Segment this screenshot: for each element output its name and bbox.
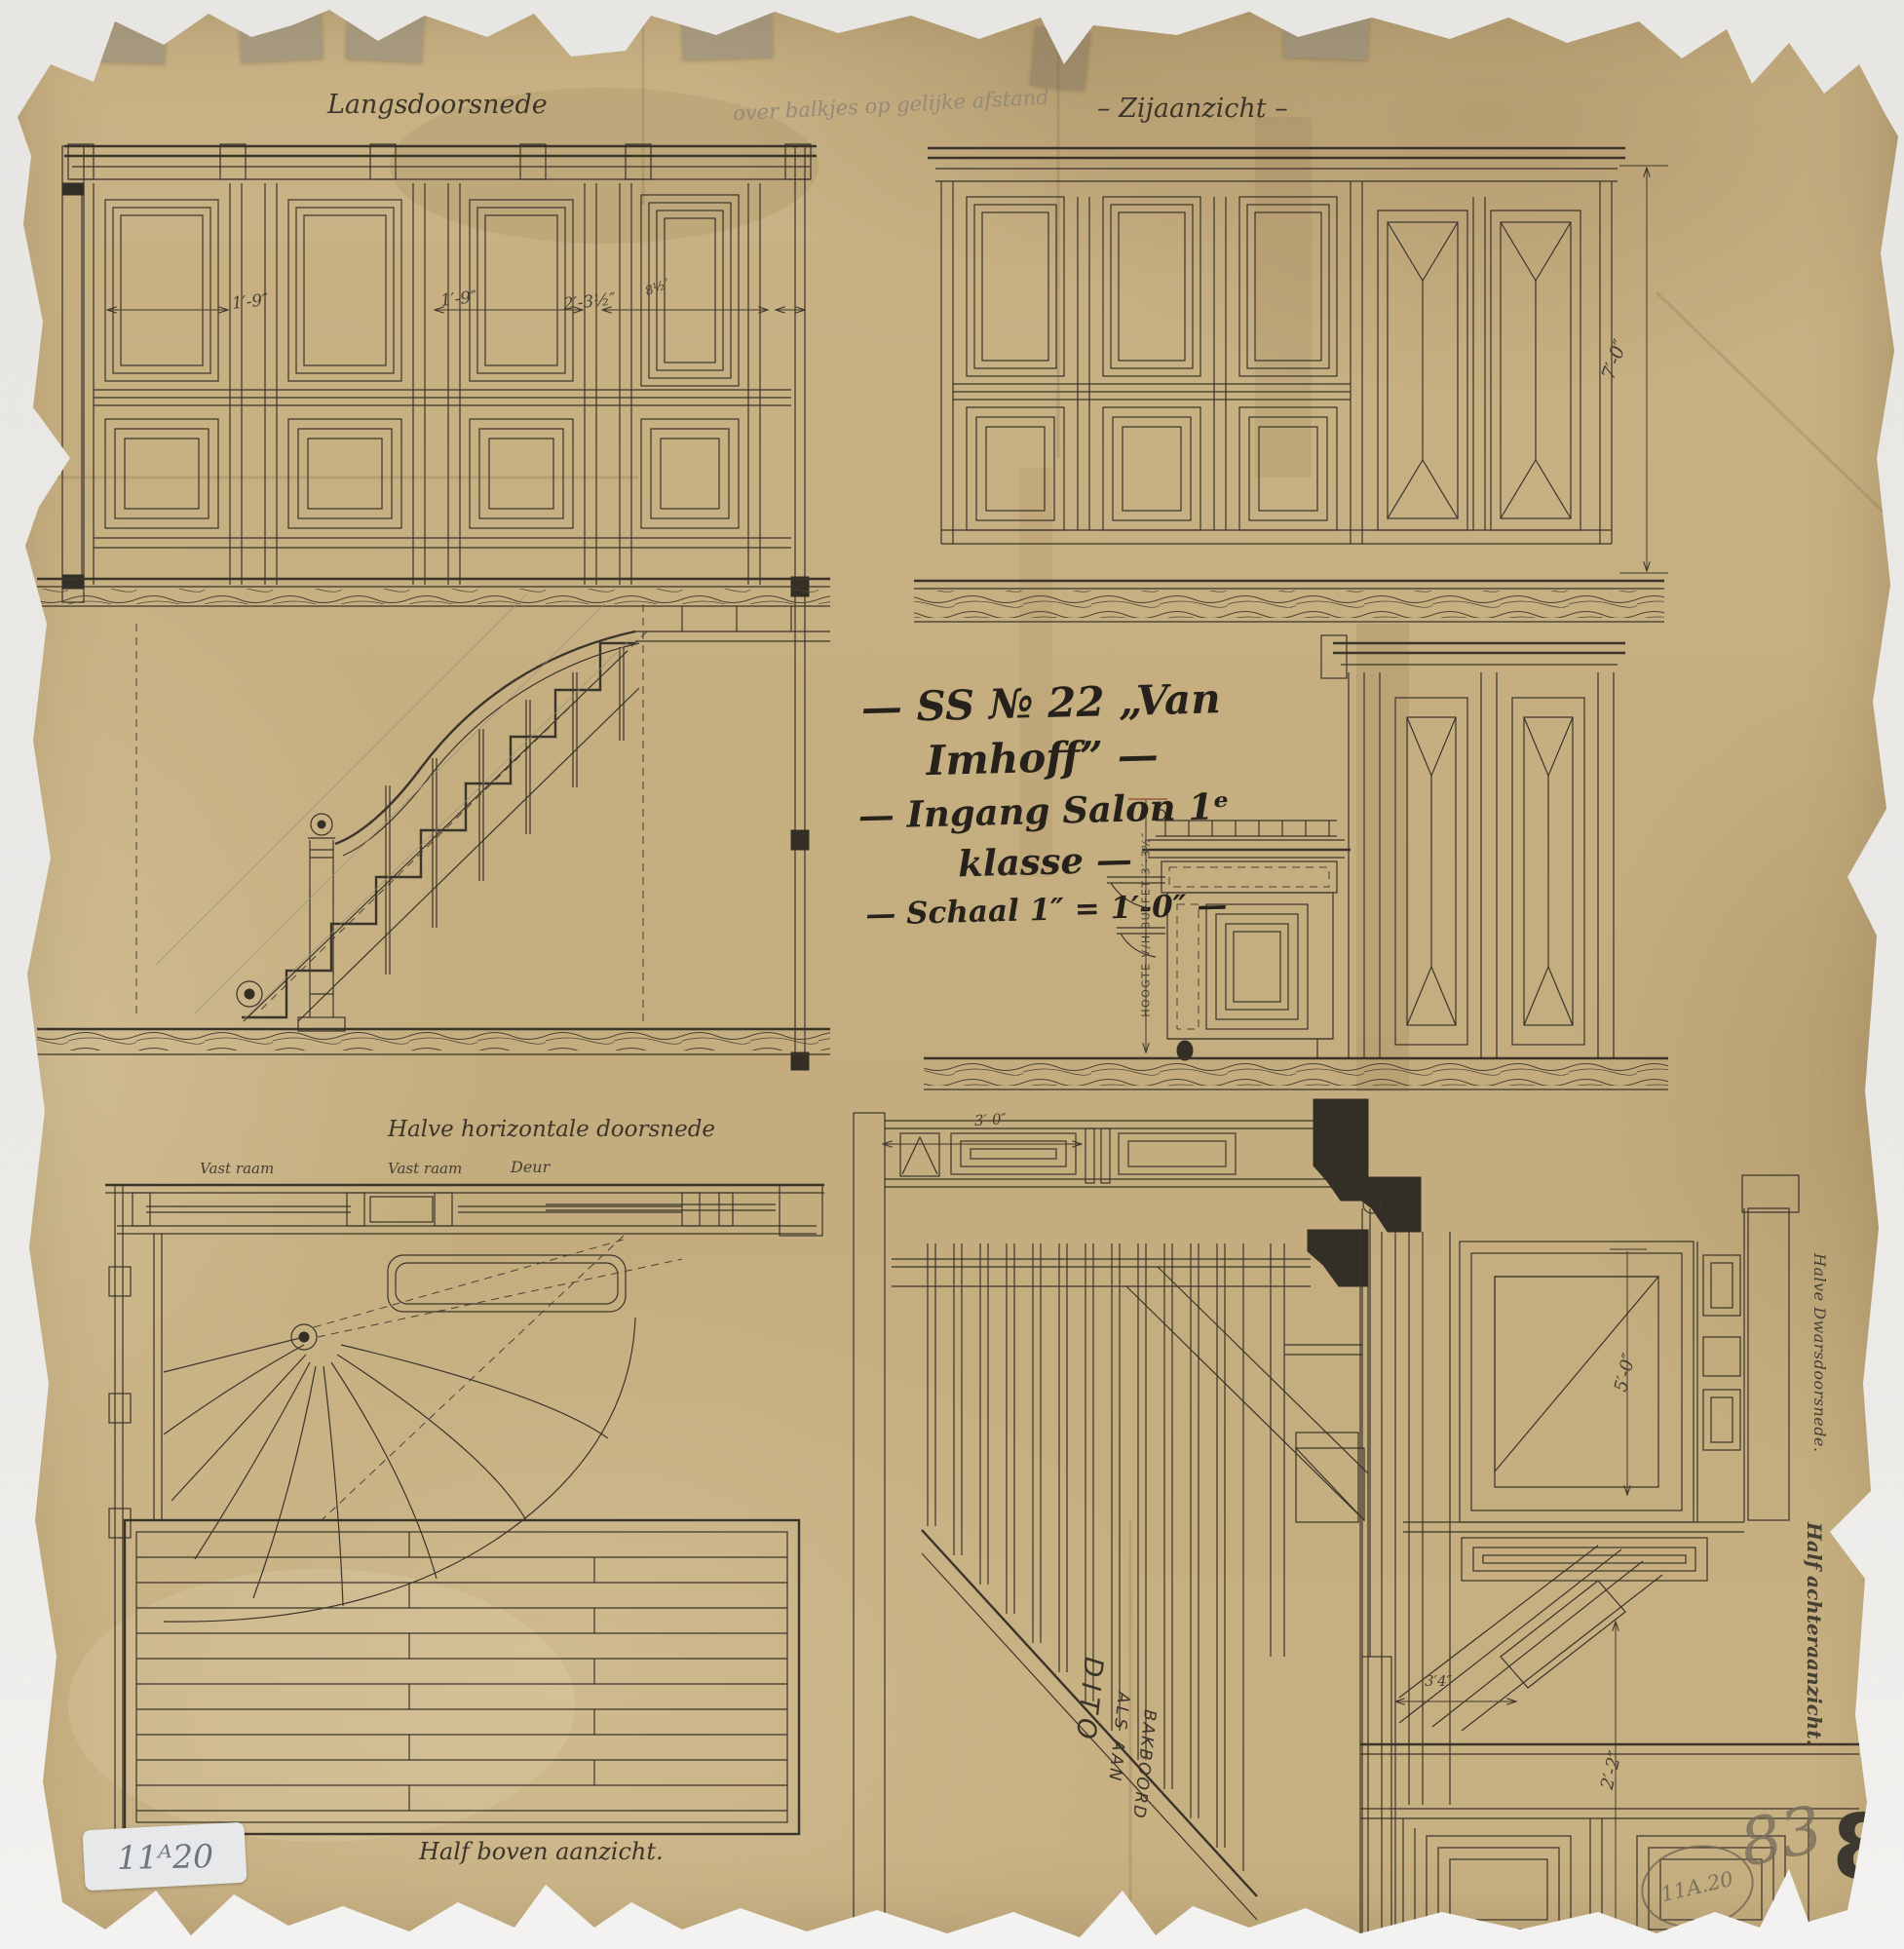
dim-label: 1′-9″ bbox=[231, 290, 269, 314]
tape-remnant bbox=[346, 8, 425, 62]
door-raised-panels bbox=[1395, 698, 1584, 1045]
archive-sticker-number: 11ᴬ20 bbox=[116, 1837, 213, 1877]
title-line-1: — SS № 22 „Van Imhoff” — bbox=[812, 670, 1273, 791]
view-label-dwarsdoorsnede: Halve Dwarsdoorsnede. bbox=[1810, 1253, 1829, 1453]
view-label-half-achteraanzicht: Half achteraanzicht. bbox=[1803, 1522, 1826, 1746]
tape-remnant bbox=[238, 0, 323, 62]
view-label-half-boven-aanzicht: Half boven aanzicht. bbox=[419, 1838, 664, 1865]
dim-label: 1′-9″ bbox=[439, 287, 477, 311]
archive-sticker: 11ᴬ20 bbox=[82, 1822, 247, 1892]
drawing-linework bbox=[0, 0, 1904, 1949]
mitred-diagonal-frame bbox=[1399, 1546, 1662, 1731]
langsdoorsnede-elevation bbox=[37, 144, 830, 1070]
scan-backdrop: { "sheet": { "pencil_note_top": "over ba… bbox=[0, 0, 1904, 1949]
lower-panels-row bbox=[105, 419, 739, 528]
view-label-plan: Halve horizontale doorsnede bbox=[388, 1117, 715, 1142]
tape-remnant bbox=[1030, 26, 1090, 91]
title-block: — SS № 22 „Van Imhoff” — — Ingang Salon … bbox=[812, 670, 1276, 939]
title-line-2: — Ingang Salon 1ᵉ klasse — bbox=[815, 780, 1276, 893]
staircase-section bbox=[136, 594, 830, 1031]
pencil-circled-number-text: 11A.20 bbox=[1659, 1867, 1736, 1906]
stair-plan bbox=[164, 1236, 682, 1622]
balusters bbox=[386, 647, 624, 974]
height-dimension-7ft bbox=[1619, 166, 1668, 573]
plan-label-deur: Deur bbox=[511, 1158, 550, 1176]
dim-label: 3′-0″ bbox=[973, 1110, 1007, 1129]
ink-stamp-83: 83 bbox=[1832, 1795, 1904, 1899]
plan-label-vast-raam-1: Vast raam bbox=[200, 1160, 274, 1177]
tape-remnant bbox=[93, 5, 167, 64]
drawing-sheet-paper: Langsdoorsnede over balkjes op gelijke a… bbox=[0, 0, 1904, 1949]
paper-stains bbox=[39, 16, 1898, 1939]
view-label-zijaanzicht: – Zijaanzicht – bbox=[1097, 94, 1288, 124]
buffet-height-note: HOOGTE V/H BUFFET 3′-3½″ bbox=[1140, 794, 1153, 1055]
bakboord-panelling bbox=[854, 1099, 1370, 1939]
upper-glazed-panel bbox=[1460, 1208, 1744, 1522]
tape-remnant bbox=[1283, 3, 1369, 60]
dim-label: 3′4″ bbox=[1425, 1672, 1452, 1690]
view-label-langsdoorsnede: Langsdoorsnede bbox=[327, 90, 548, 120]
door-panels bbox=[1378, 210, 1580, 530]
plan-label-vast-raam-2: Vast raam bbox=[388, 1160, 462, 1177]
balusters-raked bbox=[922, 1243, 1257, 1920]
tape-remnant bbox=[681, 0, 773, 59]
